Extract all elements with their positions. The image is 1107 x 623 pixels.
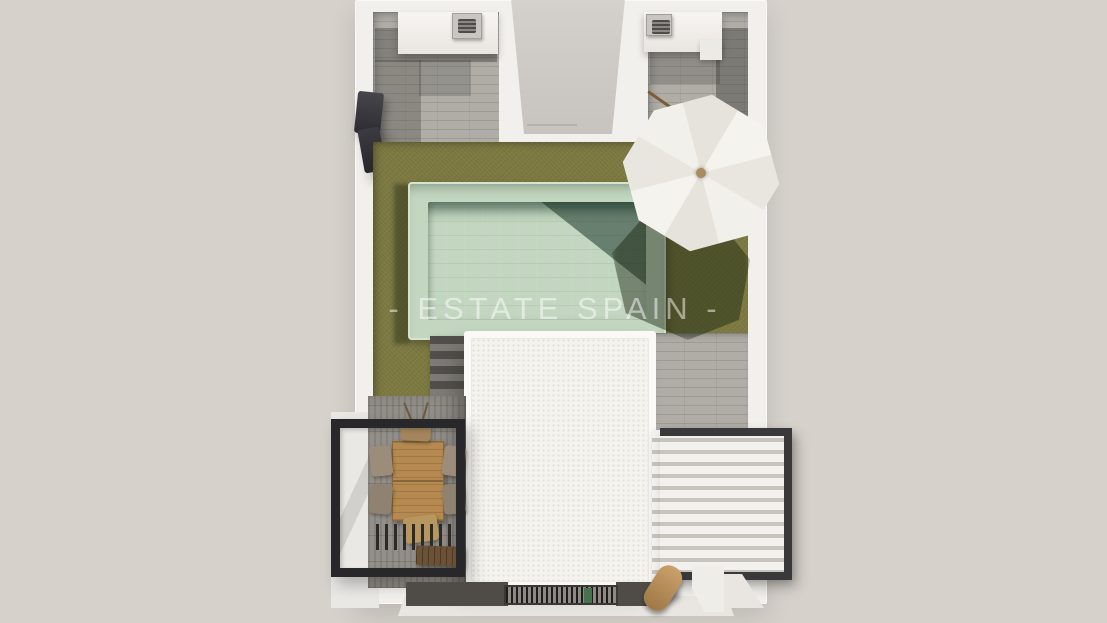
floor-grate [504,585,618,605]
grate-green-item [584,588,592,603]
ac-unit-left [452,13,482,39]
pergola-frame-right [660,428,792,580]
watermark-text: - ESTATE SPAIN - [375,289,735,329]
ac-ledge-right-step [700,40,722,60]
stone-walkway-right [652,333,748,435]
dark-walkway [406,582,508,606]
umbrella-center-knob [695,167,706,178]
courtyard-door-line [527,124,577,126]
pergola-frame-left [331,419,465,577]
ac-grille-icon [458,19,476,33]
render-canvas: - ESTATE SPAIN - [0,0,1107,623]
patio-dark-tiles [419,60,471,96]
ac-ledge-left [398,12,498,54]
ac-unit-right [646,14,672,36]
white-roof-terrace [464,331,656,589]
ac-grille-icon [652,20,670,34]
